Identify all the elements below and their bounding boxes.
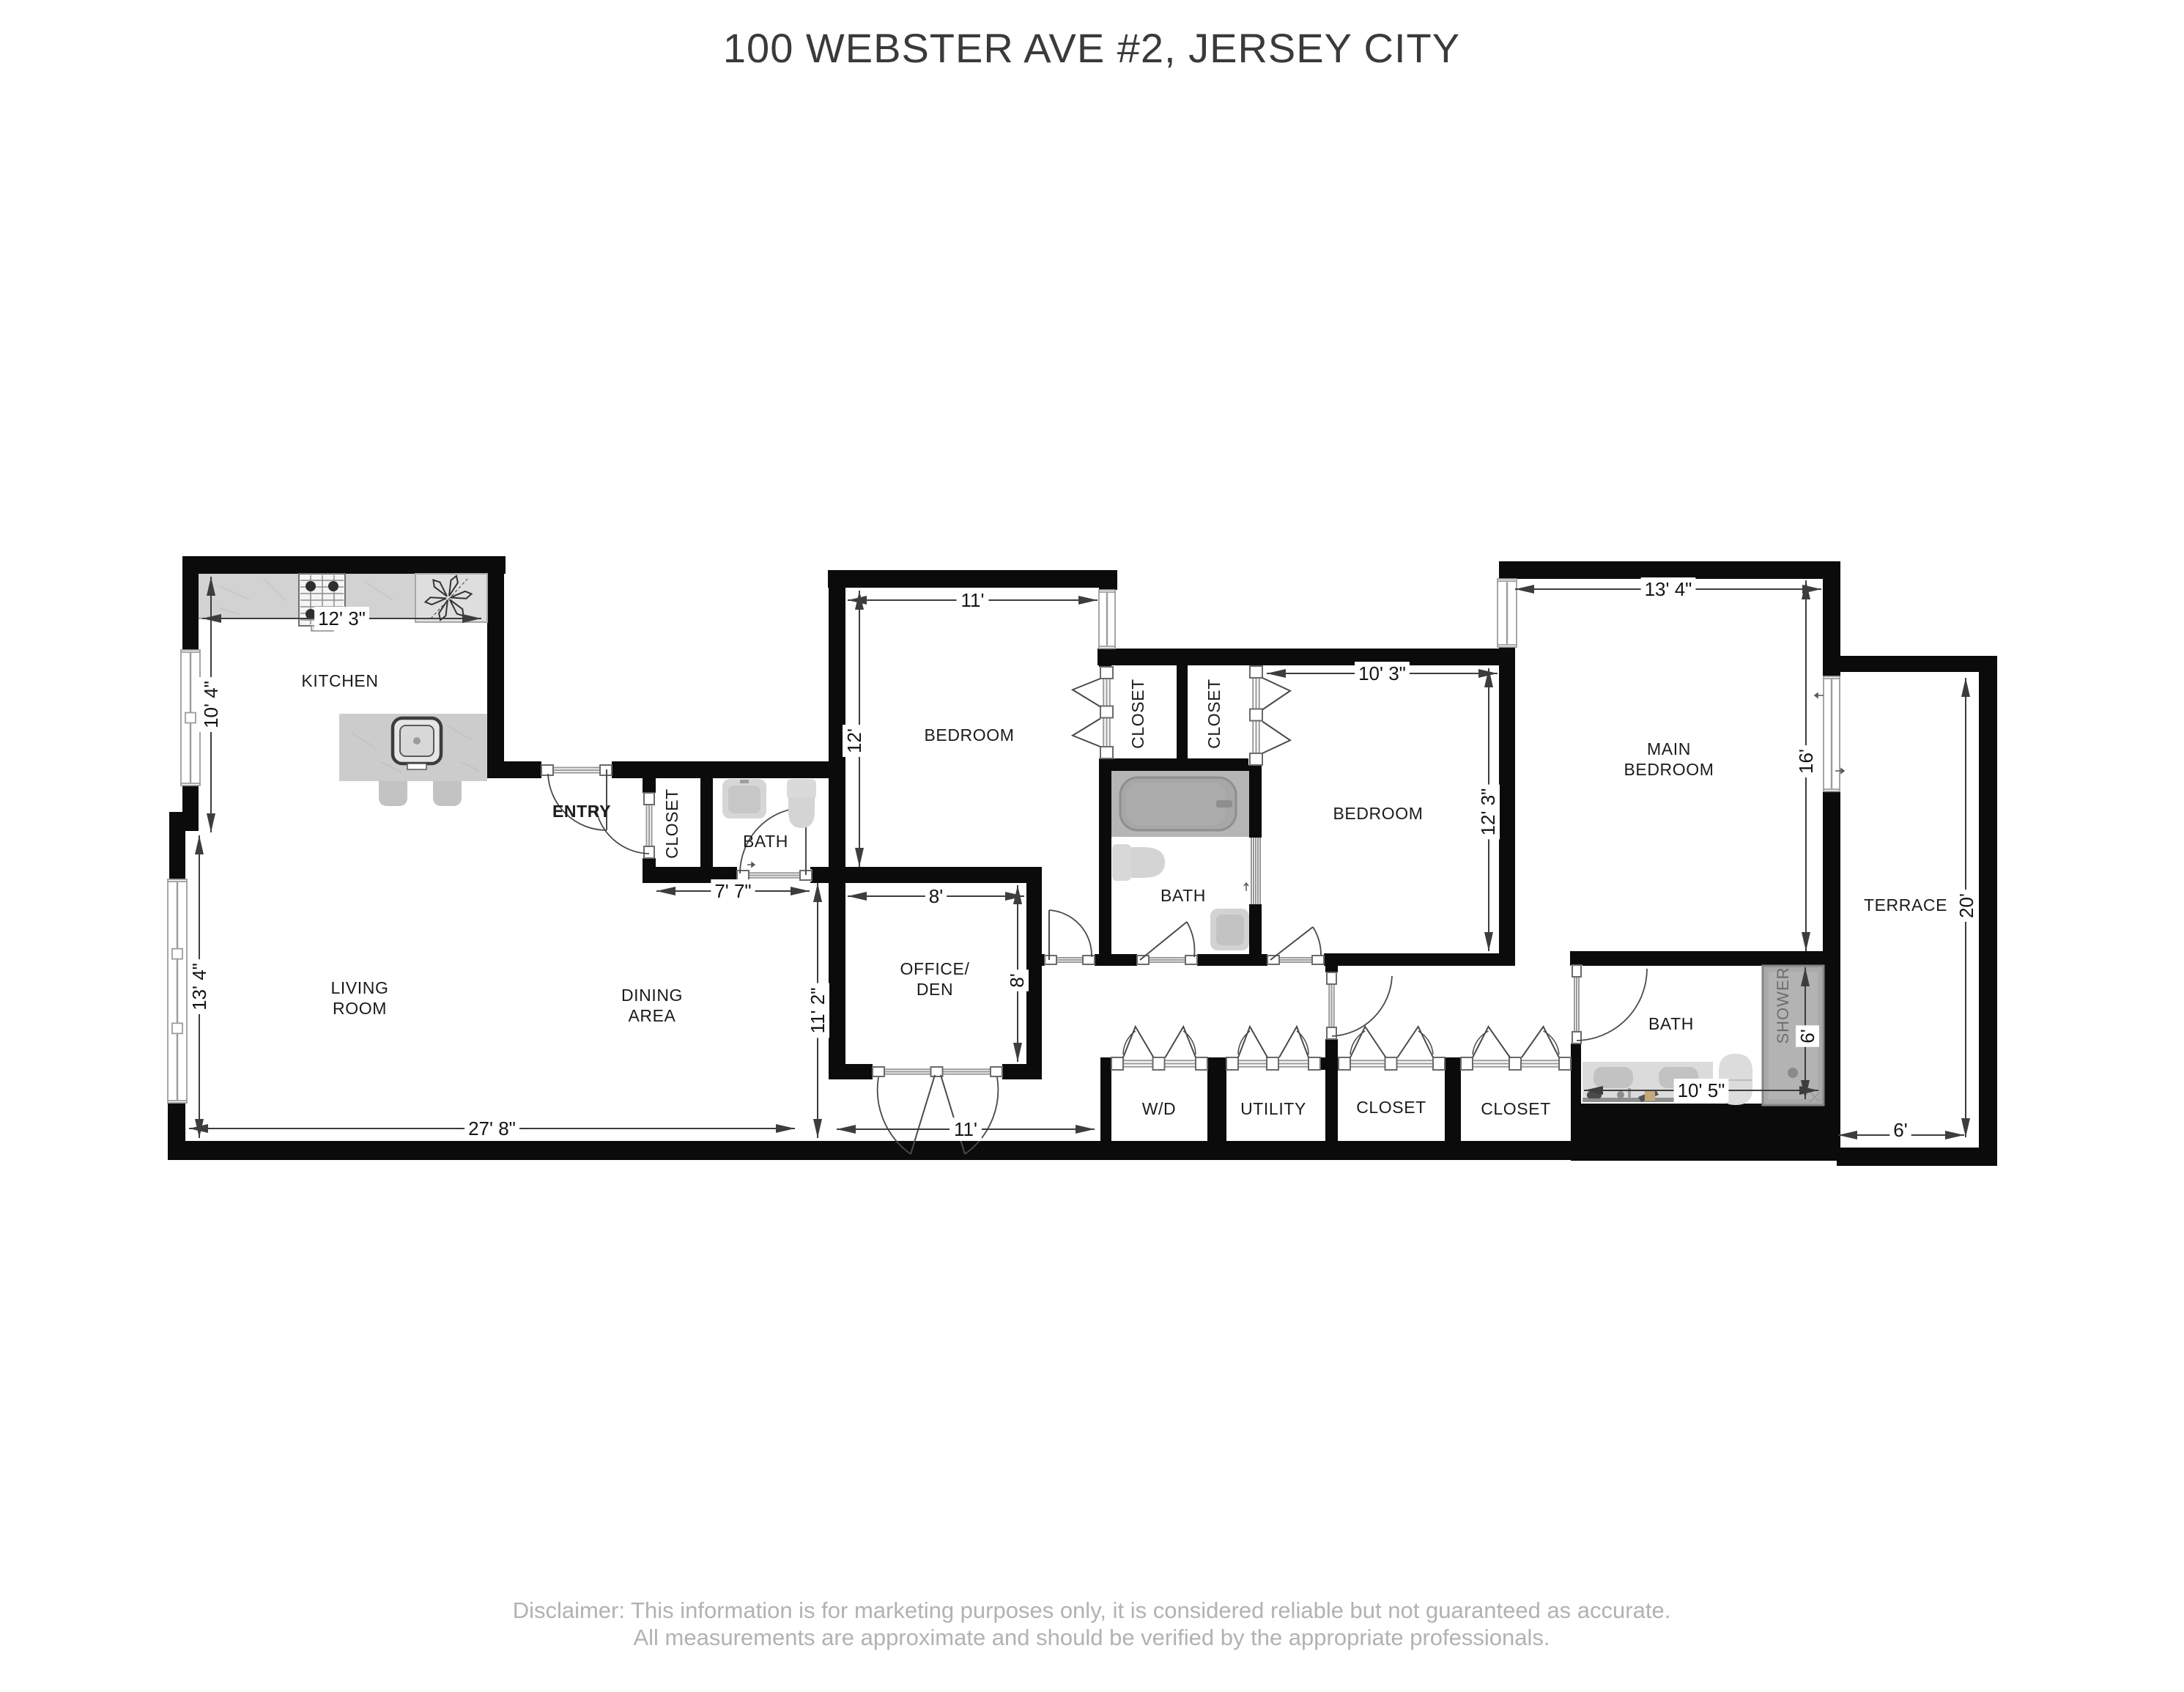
svg-text:TERRACE: TERRACE — [1864, 895, 1947, 915]
svg-text:LIVING: LIVING — [330, 978, 388, 997]
svg-text:BEDROOM: BEDROOM — [1333, 804, 1423, 823]
svg-text:BATH: BATH — [743, 832, 788, 851]
svg-text:6': 6' — [1796, 1029, 1818, 1043]
svg-text:MAIN: MAIN — [1647, 739, 1691, 758]
svg-text:13' 4": 13' 4" — [1645, 578, 1692, 600]
svg-text:CLOSET: CLOSET — [1356, 1098, 1426, 1117]
svg-text:11': 11' — [954, 1118, 977, 1140]
svg-text:8': 8' — [929, 885, 943, 907]
svg-text:7' 7": 7' 7" — [714, 880, 751, 902]
svg-text:BEDROOM: BEDROOM — [924, 725, 1014, 745]
svg-text:11': 11' — [961, 589, 985, 611]
svg-text:12': 12' — [843, 728, 865, 753]
svg-text:DEN: DEN — [917, 980, 953, 999]
svg-text:10' 4": 10' 4" — [200, 681, 222, 728]
svg-text:13' 4": 13' 4" — [188, 963, 210, 1011]
svg-text:UTILITY: UTILITY — [1240, 1099, 1306, 1118]
svg-text:6': 6' — [1893, 1119, 1907, 1141]
svg-text:27' 8": 27' 8" — [468, 1117, 516, 1139]
svg-text:10' 3": 10' 3" — [1358, 662, 1406, 684]
svg-text:SHOWER: SHOWER — [1774, 967, 1792, 1044]
svg-text:10' 5": 10' 5" — [1678, 1079, 1725, 1101]
svg-text:OFFICE/: OFFICE/ — [900, 959, 970, 978]
svg-text:BEDROOM: BEDROOM — [1624, 760, 1714, 779]
svg-text:BATH: BATH — [1161, 886, 1206, 905]
svg-text:CLOSET: CLOSET — [1481, 1099, 1551, 1118]
svg-text:ROOM: ROOM — [333, 999, 387, 1018]
svg-text:AREA: AREA — [628, 1006, 675, 1025]
svg-text:CLOSET: CLOSET — [1204, 679, 1224, 749]
svg-text:12' 3": 12' 3" — [1477, 788, 1499, 836]
svg-text:KITCHEN: KITCHEN — [301, 671, 378, 690]
svg-text:Disclaimer: This information i: Disclaimer: This information is for mark… — [513, 1597, 1671, 1623]
svg-text:All measurements are approxima: All measurements are approximate and sho… — [633, 1625, 1550, 1650]
svg-text:11' 2": 11' 2" — [807, 988, 829, 1034]
svg-text:CLOSET: CLOSET — [662, 788, 681, 859]
svg-text:DINING: DINING — [621, 986, 683, 1005]
svg-text:CLOSET: CLOSET — [1128, 679, 1147, 749]
svg-text:W/D: W/D — [1142, 1099, 1177, 1118]
svg-text:20': 20' — [1955, 893, 1977, 918]
svg-text:BATH: BATH — [1648, 1014, 1694, 1033]
svg-text:100 WEBSTER AVE #2, JERSEY CIT: 100 WEBSTER AVE #2, JERSEY CITY — [723, 25, 1460, 71]
svg-text:ENTRY: ENTRY — [552, 802, 611, 821]
svg-text:16': 16' — [1795, 749, 1817, 774]
svg-text:12' 3": 12' 3" — [318, 607, 366, 629]
svg-text:8': 8' — [1006, 973, 1028, 987]
